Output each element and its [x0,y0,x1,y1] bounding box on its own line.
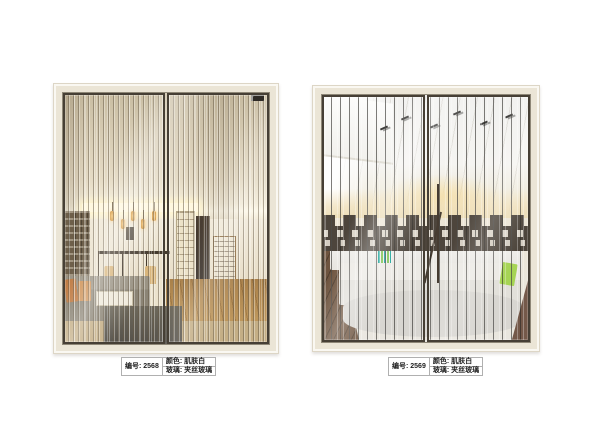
spec-table-right: 编号: 2569 颜色: 肌肤白 玻璃: 夹丝玻璃 [388,357,483,376]
glass-panel-left [63,93,165,344]
spec-color: 颜色: 肌肤白 [162,358,215,367]
spec-glass: 玻璃: 夹丝玻璃 [429,367,482,376]
door-photo-left [53,83,279,354]
glass-panel-left [322,95,425,342]
glass-panel-right [167,93,269,344]
spec-code: 编号: 2569 [389,358,430,376]
spec-glass: 玻璃: 夹丝玻璃 [162,367,215,376]
spec-code: 编号: 2568 [122,358,163,376]
glass-panel-right [427,95,530,342]
door-glass-area [62,92,270,345]
spec-table-left: 编号: 2568 颜色: 肌肤白 玻璃: 夹丝玻璃 [121,357,216,376]
brand-logo-sticker [251,95,264,101]
spec-color: 颜色: 肌肤白 [429,358,482,367]
door-glass-area [321,94,531,343]
door-photo-right [312,85,540,352]
